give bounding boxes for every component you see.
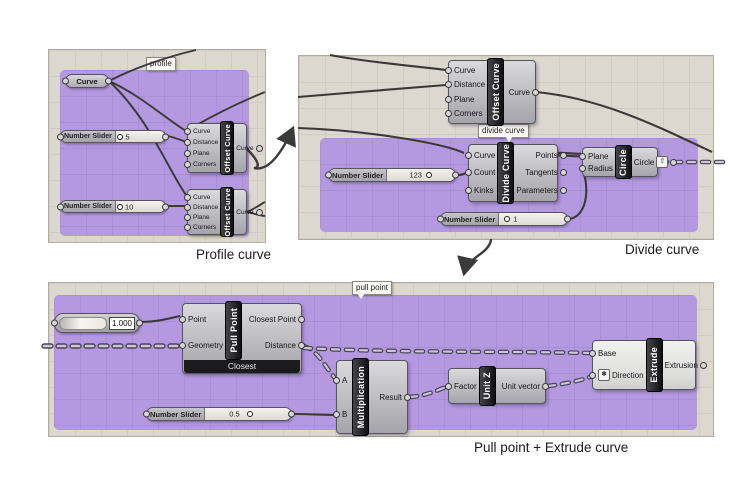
port-input[interactable]: Point [183,315,206,324]
caption-profile-curve: Profile curve [196,247,271,262]
component-title-bar[interactable]: Offset Curve [220,187,234,237]
output-nub[interactable] [542,383,549,390]
port-input[interactable]: Plane [188,214,210,221]
input-nub[interactable] [179,342,186,349]
input-nub[interactable] [179,316,186,323]
input-nub[interactable] [333,411,340,418]
port-input[interactable]: ✱Direction [593,369,644,381]
port-input[interactable]: Plane [583,152,608,161]
port-input[interactable]: Geometry [183,341,223,350]
input-nub[interactable] [184,150,191,157]
output-nub[interactable] [256,145,263,152]
port-input[interactable]: Base [593,349,616,358]
pull-point-component[interactable]: Point Geometry Pull Point Closest Point … [182,303,302,374]
port-input[interactable]: A [337,376,347,385]
output-nub[interactable] [532,89,539,96]
port-output[interactable]: Extrusion [665,361,703,370]
value-gauge[interactable]: 1.000 [54,313,140,333]
port-input[interactable]: B [337,410,347,419]
port-output[interactable]: Circle ⇧ [634,156,673,168]
slider-label: Number Slider [61,131,116,142]
grasshopper-tutorial-image: profile divide curve pull point [0,0,730,501]
extrude-component[interactable]: Base ✱Direction Extrude Extrusion [592,340,696,390]
port-output[interactable]: Tangents [525,168,562,177]
number-slider-1[interactable]: Number Slider 1 [440,212,568,226]
port-output[interactable]: Points [535,151,562,160]
slider-grip[interactable] [117,134,123,140]
port-input[interactable]: Distance [188,139,218,146]
input-nub[interactable] [589,350,596,357]
input-nub[interactable] [579,153,586,160]
input-nub[interactable] [57,203,64,210]
gauge-value: 1.000 [109,317,135,330]
number-slider-10[interactable]: Number Slider 10 [60,200,166,213]
slider-value: 0.5 [229,410,239,419]
slider-track[interactable]: 123 [387,169,455,181]
param-label: Curve [66,77,108,86]
slider-track[interactable]: 10 [116,201,165,212]
slider-grip[interactable] [426,172,432,178]
input-nub[interactable] [465,169,472,176]
port-input[interactable]: Plane [449,95,474,104]
caption-pull-extrude: Pull point + Extrude curve [474,440,628,455]
port-input[interactable]: Count [469,168,495,177]
port-input[interactable]: Distance [188,204,218,211]
divide-curve-component[interactable]: Curve Count Kinks Divide Curve Points Ta… [468,144,558,202]
component-title-bar[interactable]: Extrude [646,338,663,392]
output-nub[interactable] [105,78,112,85]
port-input[interactable]: Kinks [469,186,494,195]
input-nub[interactable] [333,377,340,384]
output-nub[interactable] [298,316,305,323]
offset-curve-component-3[interactable]: Curve Distance Plane Corners Offset Curv… [448,60,536,124]
output-nub[interactable] [564,216,571,223]
input-nub[interactable] [184,128,191,135]
port-input[interactable]: Radius [583,164,613,173]
input-nub[interactable] [445,110,452,117]
output-nub[interactable] [162,203,169,210]
slider-value: 5 [126,132,130,141]
port-output[interactable]: Result [379,393,407,402]
component-title-bar[interactable]: Unit Z [479,366,496,406]
port-input[interactable]: Corners [188,161,216,168]
slider-label: Number Slider [147,408,205,420]
port-input[interactable]: Curve [188,194,210,201]
slider-label: Number Slider [329,169,387,181]
port-input[interactable]: Distance [449,80,485,89]
slider-track[interactable]: 5 [116,131,165,142]
input-nub[interactable] [184,161,191,168]
port-output[interactable]: Unit vector [502,382,545,391]
slider-track[interactable]: 1 [499,213,567,225]
output-nub[interactable] [452,172,459,179]
port-output[interactable]: Curve [236,209,258,216]
slider-value: 10 [125,202,133,211]
slider-grip[interactable] [247,411,253,417]
tag-divide-curve[interactable]: divide curve [478,124,529,138]
input-nub[interactable] [184,204,191,211]
port-output[interactable]: Parameters [516,186,562,195]
port-input[interactable]: Plane [188,150,210,157]
output-nub[interactable] [560,152,567,159]
unit-z-component[interactable]: Factor Unit Z Unit vector [448,368,546,404]
component-title-bar[interactable]: Circle [615,145,632,179]
number-slider-05[interactable]: Number Slider 0.5 [146,407,292,421]
circle-component[interactable]: Plane Radius Circle Circle ⇧ [582,147,658,177]
output-nub[interactable] [136,320,143,327]
output-nub[interactable] [700,362,707,369]
output-nub[interactable] [162,133,169,140]
input-nub[interactable] [57,133,64,140]
output-nub[interactable] [298,342,305,349]
input-nub[interactable] [325,172,332,179]
component-title-bar[interactable]: Offset Curve [487,58,504,126]
panel-link-arrow-2 [464,240,491,274]
output-nub[interactable] [404,394,411,401]
slider-value: 1 [513,215,517,224]
component-title-bar[interactable]: Offset Curve [220,121,234,175]
tag-pointer [357,293,365,299]
input-nub[interactable] [62,78,69,85]
expression-icon[interactable]: ✱ [598,369,610,381]
input-nub[interactable] [51,320,58,327]
component-title-bar[interactable]: Divide Curve [497,142,514,204]
port-input[interactable]: Curve [469,151,495,160]
offset-curve-component-1[interactable]: Curve Distance Plane Corners Offset Curv… [187,123,247,173]
slider-label: Number Slider [61,201,116,212]
port-input[interactable]: Corners [449,109,482,118]
output-nub[interactable] [560,187,567,194]
output-nub[interactable] [670,159,677,166]
input-nub[interactable] [445,81,452,88]
multiplication-component[interactable]: A B Multiplication Result [336,360,408,434]
number-slider-5[interactable]: Number Slider 5 [60,130,166,143]
port-input[interactable]: Factor [449,382,477,391]
port-output[interactable]: Distance [265,341,301,350]
slider-value: 123 [409,171,422,180]
slider-track[interactable]: 0.5 [205,408,291,420]
input-nub[interactable] [579,165,586,172]
port-input[interactable]: Curve [188,128,210,135]
tag-profile[interactable]: profile [146,57,176,71]
input-nub[interactable] [465,187,472,194]
slider-grip[interactable] [504,216,510,222]
output-nub[interactable] [288,411,295,418]
output-nub[interactable] [256,209,263,216]
offset-curve-component-2[interactable]: Curve Distance Plane Corners Offset Curv… [187,189,247,235]
input-nub[interactable] [143,411,150,418]
input-nub[interactable] [437,216,444,223]
slider-grip[interactable] [117,204,123,210]
input-nub[interactable] [184,214,191,221]
input-nub[interactable] [445,96,452,103]
caption-divide-curve: Divide curve [625,242,699,257]
component-title-bar[interactable]: Pull Point [225,301,242,360]
input-nub[interactable] [184,224,191,231]
input-nub[interactable] [589,372,596,379]
port-input[interactable]: Curve [449,66,475,75]
input-nub[interactable] [445,67,452,74]
up-arrow-icon[interactable]: ⇧ [656,156,668,168]
port-input[interactable]: Corners [188,224,216,231]
component-title-bar[interactable]: Multiplication [352,358,369,436]
input-nub[interactable] [184,139,191,146]
number-slider-123[interactable]: Number Slider 123 [328,168,456,182]
port-output[interactable]: Curve [236,145,258,152]
input-nub[interactable] [445,383,452,390]
gauge-track[interactable] [59,317,107,330]
slider-label: Number Slider [441,213,499,225]
curve-parameter[interactable]: Curve [65,74,109,88]
input-nub[interactable] [465,152,472,159]
input-nub[interactable] [184,194,191,201]
port-output[interactable]: Closest Point [249,315,301,324]
port-output[interactable]: Curve [509,88,535,97]
component-footer[interactable]: Closest [184,360,300,373]
